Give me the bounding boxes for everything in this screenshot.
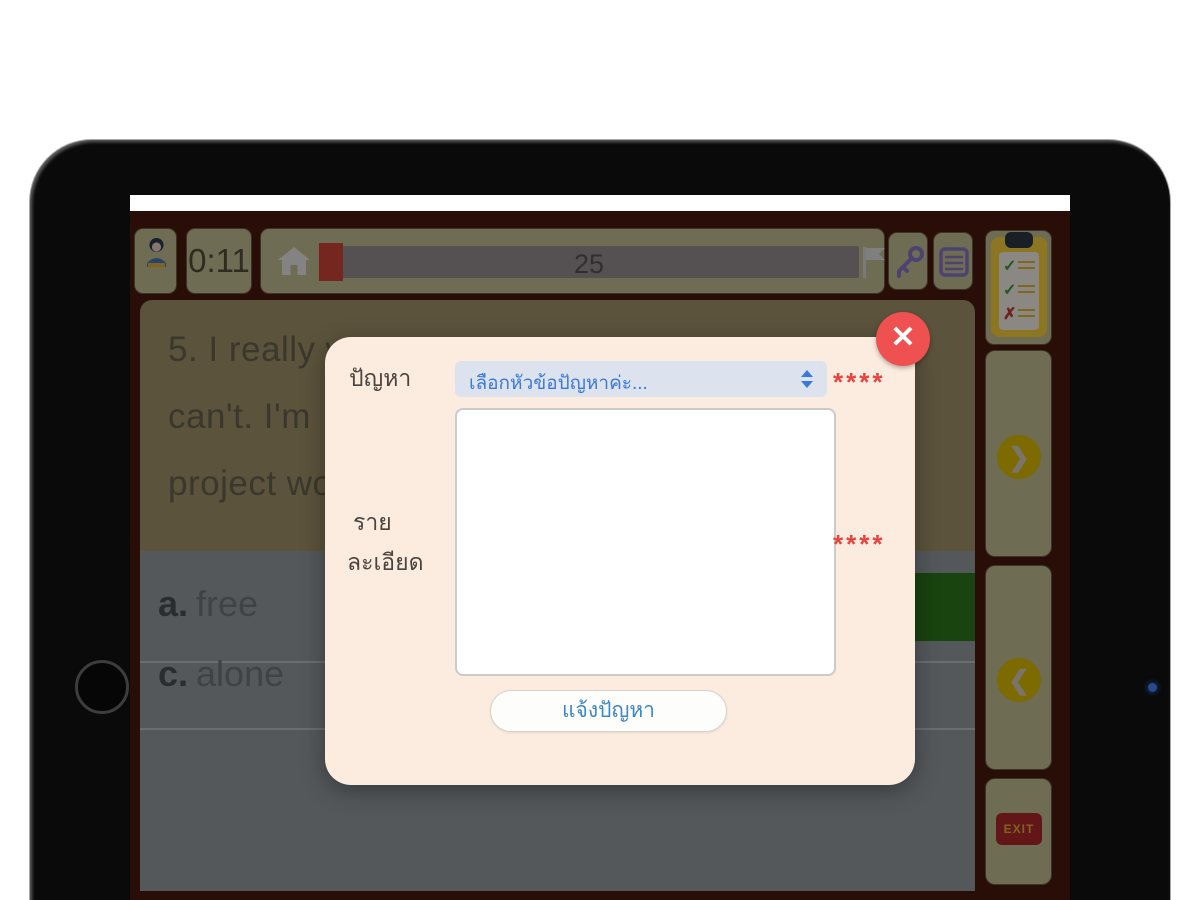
required-marker: ****: [833, 529, 885, 560]
tablet-camera: [1148, 683, 1157, 692]
page: 0:11 25: [0, 0, 1200, 900]
details-label: ละเอียด: [347, 545, 424, 581]
problem-details-textarea[interactable]: [455, 408, 836, 676]
report-problem-modal: ปัญหา เลือกหัวข้อปัญหาค่ะ... **** ราย ละ…: [325, 337, 915, 785]
problem-label: ปัญหา: [349, 361, 411, 397]
tablet-screen: 0:11 25: [130, 195, 1070, 900]
tablet-home-button[interactable]: [75, 660, 129, 714]
modal-close-button[interactable]: ✕: [876, 312, 930, 366]
problem-topic-dropdown[interactable]: เลือกหัวข้อปัญหาค่ะ...: [455, 361, 827, 397]
details-label: ราย: [353, 505, 392, 541]
required-marker: ****: [833, 367, 885, 398]
select-arrows-icon: [799, 369, 815, 389]
report-problem-submit-button[interactable]: แจ้งปัญหา: [490, 690, 727, 732]
quiz-app: 0:11 25: [130, 211, 1070, 900]
dropdown-placeholder: เลือกหัวข้อปัญหาค่ะ...: [469, 368, 648, 398]
